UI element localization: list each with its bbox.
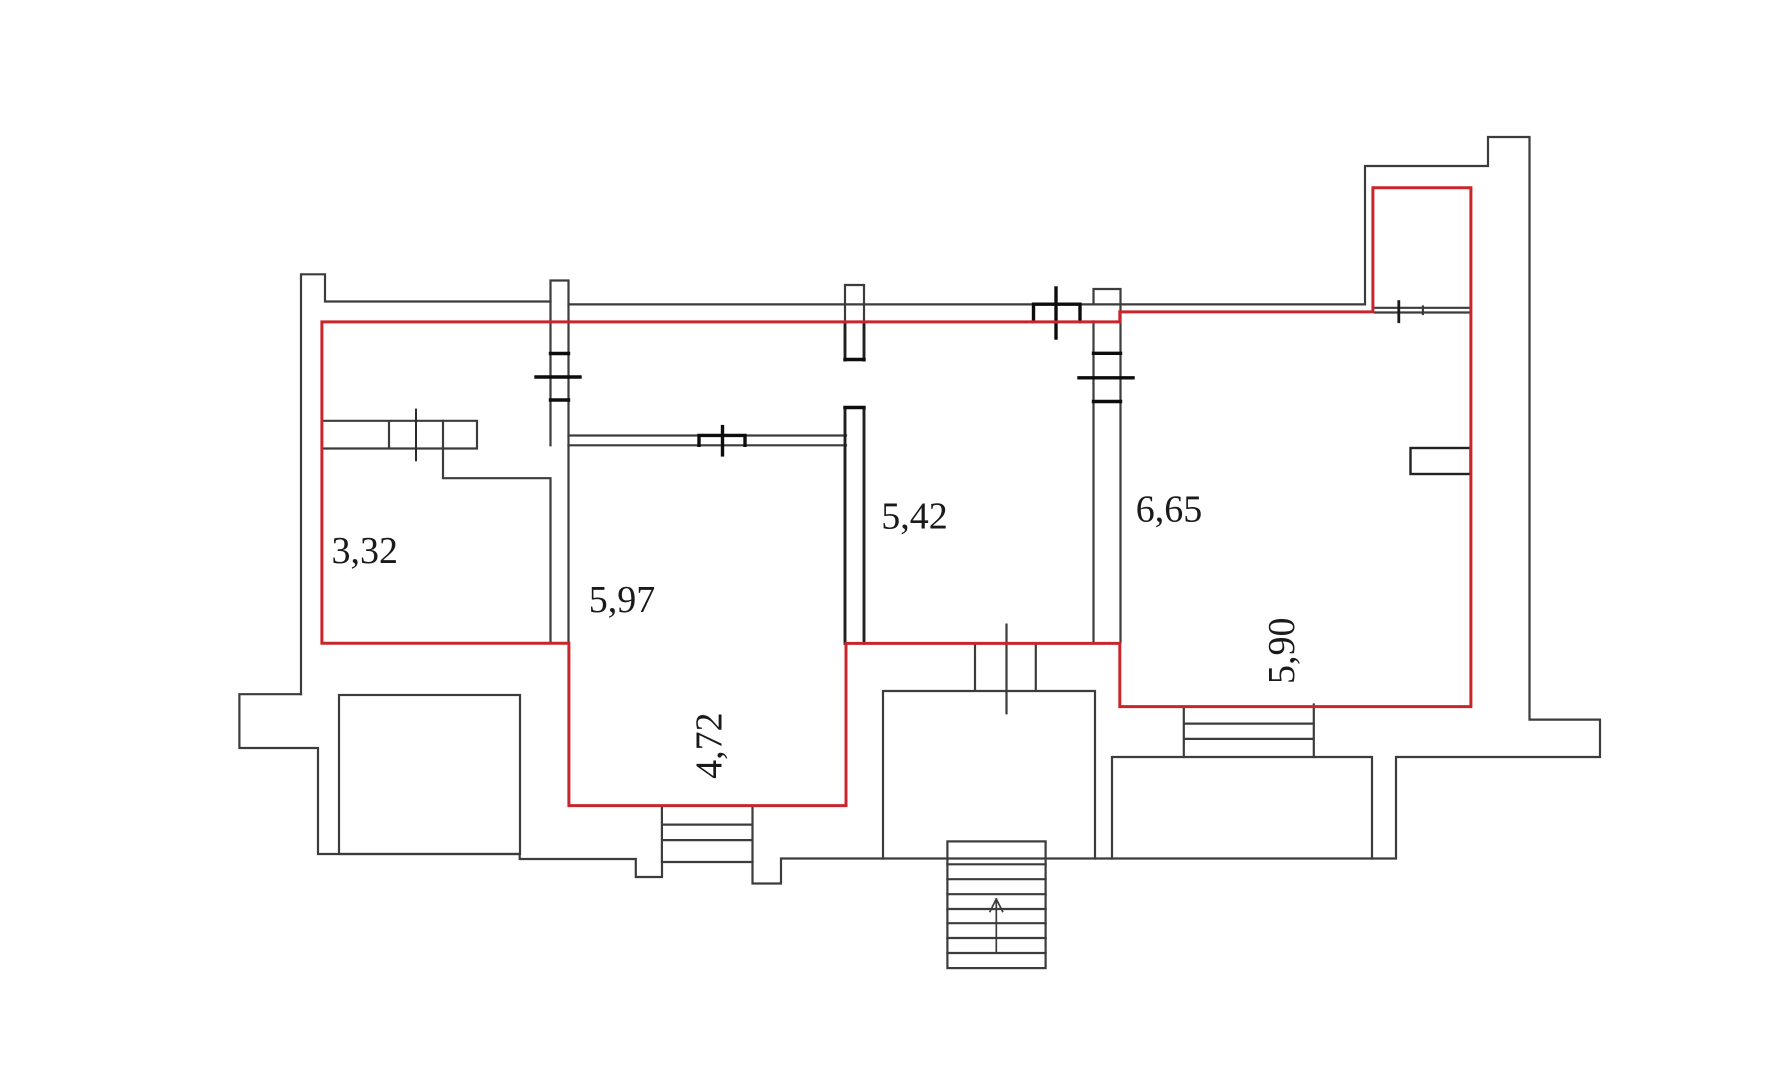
svg-text:5,90: 5,90 xyxy=(1261,617,1303,684)
svg-text:3,32: 3,32 xyxy=(331,530,398,572)
svg-text:6,65: 6,65 xyxy=(1136,489,1203,531)
svg-text:5,97: 5,97 xyxy=(589,579,656,621)
svg-text:4,72: 4,72 xyxy=(688,712,730,779)
svg-text:5,42: 5,42 xyxy=(881,496,948,538)
